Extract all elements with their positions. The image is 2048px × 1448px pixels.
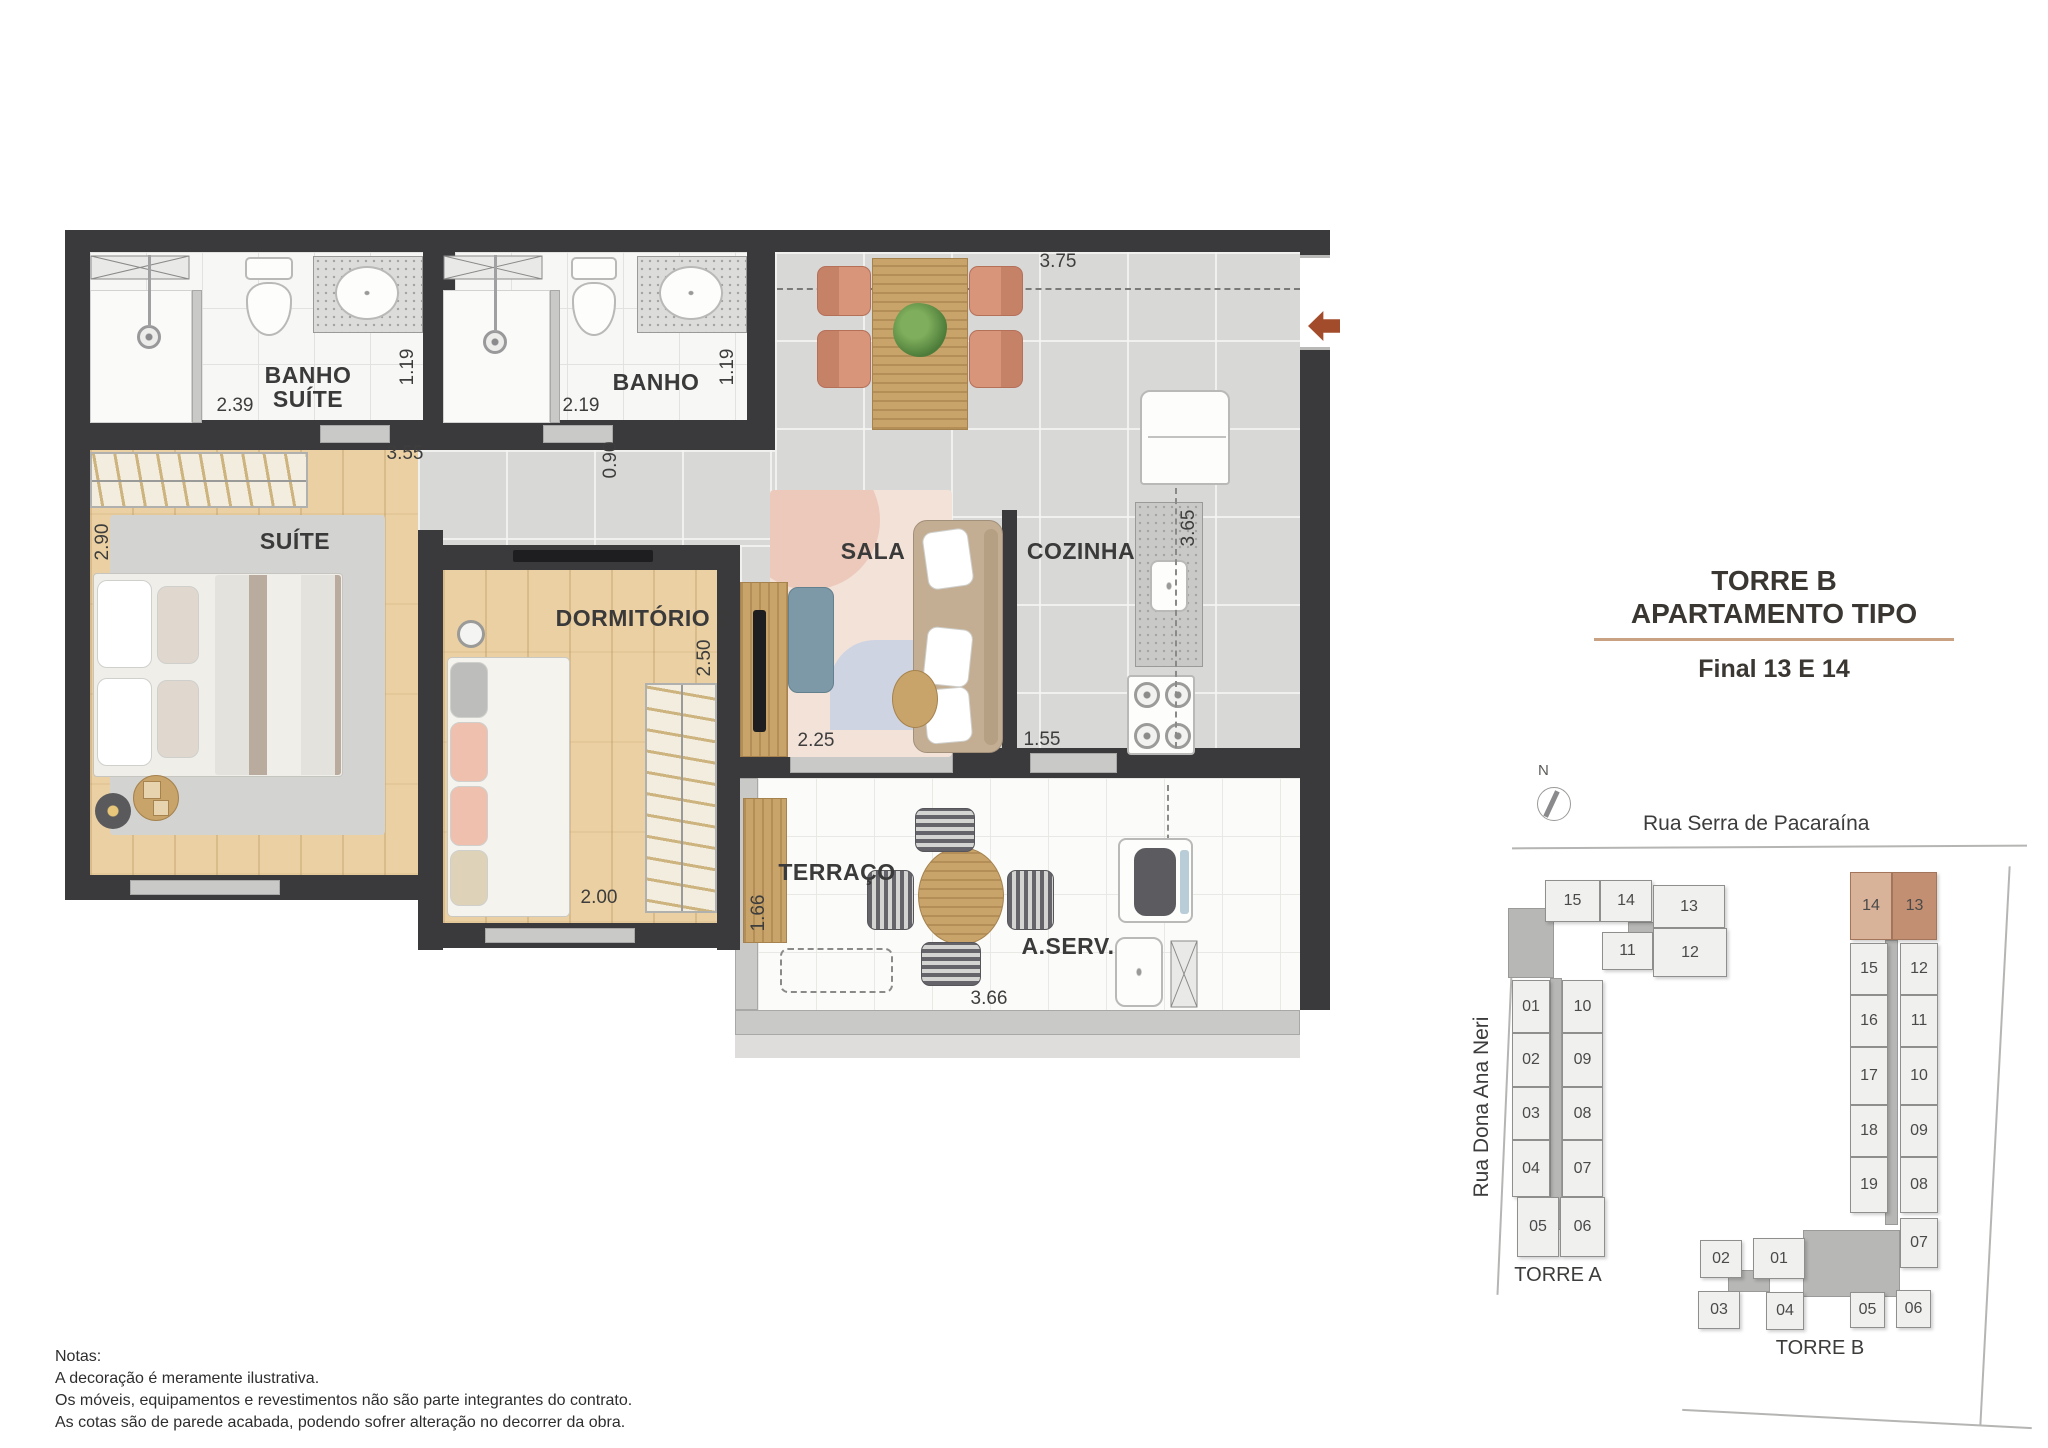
torre-b-unit: 06: [1896, 1290, 1931, 1328]
shower-stem: [148, 255, 151, 327]
dim-banho-width: 2.19: [546, 395, 616, 417]
torre-b-core-bottom: [1803, 1230, 1900, 1297]
dim-banho-suite-width: 2.39: [200, 395, 270, 417]
terrace-parapet-bottom: [735, 1010, 1300, 1035]
sala-coffee-table: [892, 670, 938, 728]
dim-hall-width: 0.90: [600, 428, 622, 492]
notes-block: Notas: A decoração é meramente ilustrati…: [55, 1346, 632, 1434]
suite-blanket: [215, 575, 341, 775]
suite-label: SUÍTE: [215, 529, 375, 553]
dim-cozinha-width: 1.55: [1007, 729, 1077, 751]
torre-a-corridor: [1550, 978, 1562, 1230]
terrace-table: [918, 847, 1004, 945]
terrace-chair: [921, 942, 981, 986]
torre-b-unit: 10: [1900, 1047, 1938, 1105]
torre-b-unit: 04: [1766, 1292, 1804, 1330]
title-block: TORRE B APARTAMENTO TIPO Final 13 E 14: [1574, 564, 1974, 684]
shower-stem-2: [494, 255, 497, 332]
street-top-line: [1512, 845, 2027, 850]
notes-line: As cotas são de parede acabada, podendo …: [55, 1412, 632, 1434]
shower-head-icon: [137, 325, 161, 349]
torre-b-unit: 01: [1753, 1238, 1805, 1279]
torre-a-unit: 03: [1512, 1087, 1550, 1140]
title-line1: TORRE B: [1574, 564, 1974, 597]
torre-b-unit: 03: [1698, 1291, 1740, 1329]
wall-top: [65, 230, 1330, 252]
torre-b-label: TORRE B: [1750, 1337, 1890, 1360]
torre-a-unit: 11: [1602, 932, 1653, 970]
sala-tv-icon: [753, 610, 766, 732]
dim-suite-width: 3.55: [370, 443, 440, 465]
banho-suite-cabinet-icon: [90, 255, 190, 280]
torre-b-unit: 05: [1850, 1292, 1885, 1328]
torre-b-unit: 17: [1850, 1047, 1888, 1105]
area-servico-label: A.SERV.: [988, 934, 1148, 958]
dim-dorm2-height: 2.50: [694, 626, 716, 690]
toilet-tank-2: [571, 257, 617, 280]
notes-heading: Notas:: [55, 1346, 632, 1368]
torre-a-unit: 07: [1562, 1140, 1603, 1197]
fridge-icon: [1140, 390, 1230, 485]
street-left-line: [1496, 950, 1513, 1295]
torre-b-unit: 08: [1900, 1157, 1938, 1213]
pillow: [97, 678, 152, 766]
torre-b-unit-13-highlight: 13: [1892, 872, 1937, 940]
dining-chair: [969, 330, 1023, 388]
torre-a-unit: 13: [1653, 885, 1725, 928]
pillow: [450, 662, 488, 718]
torre-a-unit: 01: [1512, 980, 1550, 1033]
terrace-chair: [1007, 870, 1054, 930]
property-line-right: [1979, 866, 2010, 1425]
dim-banho-suite-height: 1.19: [397, 335, 419, 399]
torre-a-unit: 14: [1600, 880, 1652, 922]
dorm2-tv-icon: [513, 550, 653, 562]
sala-label: SALA: [793, 539, 953, 563]
wall-bath-divider-2: [747, 252, 775, 430]
torre-b-unit: 09: [1900, 1105, 1938, 1157]
torre-b-unit: 19: [1850, 1157, 1888, 1213]
aserv-crossbox-icon: [1170, 940, 1198, 1008]
dorm2-wardrobe: [645, 683, 717, 913]
dim-cozinha-height: 3.65: [1178, 496, 1200, 560]
sala-armchair: [788, 587, 834, 693]
terrace-outer-band: [735, 1035, 1300, 1058]
floor-plan: BANHO SUÍTE BANHO SUÍTE DORMITÓRIO 2 SAL…: [65, 230, 1330, 1060]
dim-banho-height: 1.19: [717, 335, 739, 399]
cozinha-dashed-line: [1175, 488, 1177, 748]
dim-dorm2-width: 2.00: [564, 887, 634, 909]
torre-a-unit: 12: [1653, 928, 1727, 977]
dim-sala-width: 2.25: [781, 730, 851, 752]
notes-line: A decoração é meramente ilustrativa.: [55, 1368, 632, 1390]
torre-b-unit-14-highlight: 14: [1850, 872, 1892, 940]
torre-b-unit: 15: [1850, 943, 1888, 995]
torre-a-unit: 09: [1562, 1033, 1603, 1087]
street-left-label: Rua Dona Ana Neri: [1470, 997, 1494, 1217]
torre-b-unit: 16: [1850, 995, 1888, 1047]
wall-left: [65, 230, 90, 900]
torre-b-unit: 02: [1700, 1240, 1742, 1278]
suite-tray-item: [153, 800, 169, 816]
torre-a-unit: 02: [1512, 1033, 1550, 1087]
torre-a-unit: 06: [1560, 1197, 1605, 1257]
suite-wardrobe: [90, 452, 308, 508]
suite-window: [130, 880, 280, 895]
cozinha-sink: [1150, 560, 1188, 612]
banho-suite-basin: [335, 266, 399, 320]
banho-suite-door-sill: [320, 425, 390, 443]
torre-a-unit: 10: [1562, 980, 1603, 1033]
shower-head-icon-2: [483, 330, 507, 354]
torre-b-unit: 18: [1850, 1105, 1888, 1157]
dining-chair: [817, 266, 871, 316]
notes-line: Os móveis, equipamentos e revestimentos …: [55, 1390, 632, 1412]
torre-a-unit: 08: [1562, 1087, 1603, 1140]
suite-lamp-icon: [95, 793, 131, 829]
dorm2-lamp-icon: [457, 620, 485, 648]
banho-basin: [659, 266, 723, 320]
street-top-label: Rua Serra de Pacaraína: [1643, 812, 1869, 836]
terraco-label: TERRAÇO: [757, 860, 917, 884]
title-line2: APARTAMENTO TIPO: [1574, 597, 1974, 630]
pillow: [450, 786, 488, 846]
dim-dining-width: 3.75: [1023, 251, 1093, 273]
dining-chair: [817, 330, 871, 388]
pillow: [97, 580, 152, 668]
banho-suite-shower: [90, 290, 192, 423]
page: BANHO SUÍTE BANHO SUÍTE DORMITÓRIO 2 SAL…: [0, 0, 2048, 1448]
banho-label: BANHO: [576, 370, 736, 394]
hall-floor: [418, 450, 775, 545]
entry-door-opening: [1300, 255, 1330, 350]
pillow: [450, 722, 488, 782]
dim-suite-height: 2.90: [92, 510, 114, 574]
torre-b-unit: 07: [1900, 1218, 1938, 1268]
torre-a-unit: 15: [1545, 880, 1600, 922]
suite-tray-item: [143, 781, 161, 799]
north-label: N: [1538, 762, 1549, 779]
torre-b-unit: 12: [1900, 943, 1938, 995]
title-subtitle: Final 13 E 14: [1574, 655, 1974, 684]
cozinha-label: COZINHA: [1001, 539, 1161, 563]
north-arrow: N: [1530, 762, 1580, 824]
torre-a-unit: 05: [1517, 1197, 1559, 1257]
pillow: [450, 850, 488, 906]
dim-terraco-height: 1.66: [748, 881, 770, 945]
pillow: [157, 586, 199, 664]
washer-icon: [1118, 838, 1193, 923]
banho-cabinet-icon: [443, 255, 543, 280]
toilet-tank-1: [245, 257, 293, 280]
terrace-dashed-item: [780, 948, 893, 993]
dorm-window: [485, 928, 635, 943]
torre-a-unit: 04: [1512, 1140, 1550, 1197]
title-divider: [1594, 638, 1954, 641]
terrace-chair: [915, 808, 975, 852]
torre-a-label: TORRE A: [1488, 1264, 1628, 1287]
pillow: [157, 680, 199, 758]
terrace-slider-sill-2: [1030, 753, 1117, 773]
dim-terraco-width: 3.66: [954, 988, 1024, 1010]
dining-chair: [969, 266, 1023, 316]
torre-b-unit: 11: [1900, 995, 1938, 1047]
stove-icon: [1127, 675, 1195, 755]
